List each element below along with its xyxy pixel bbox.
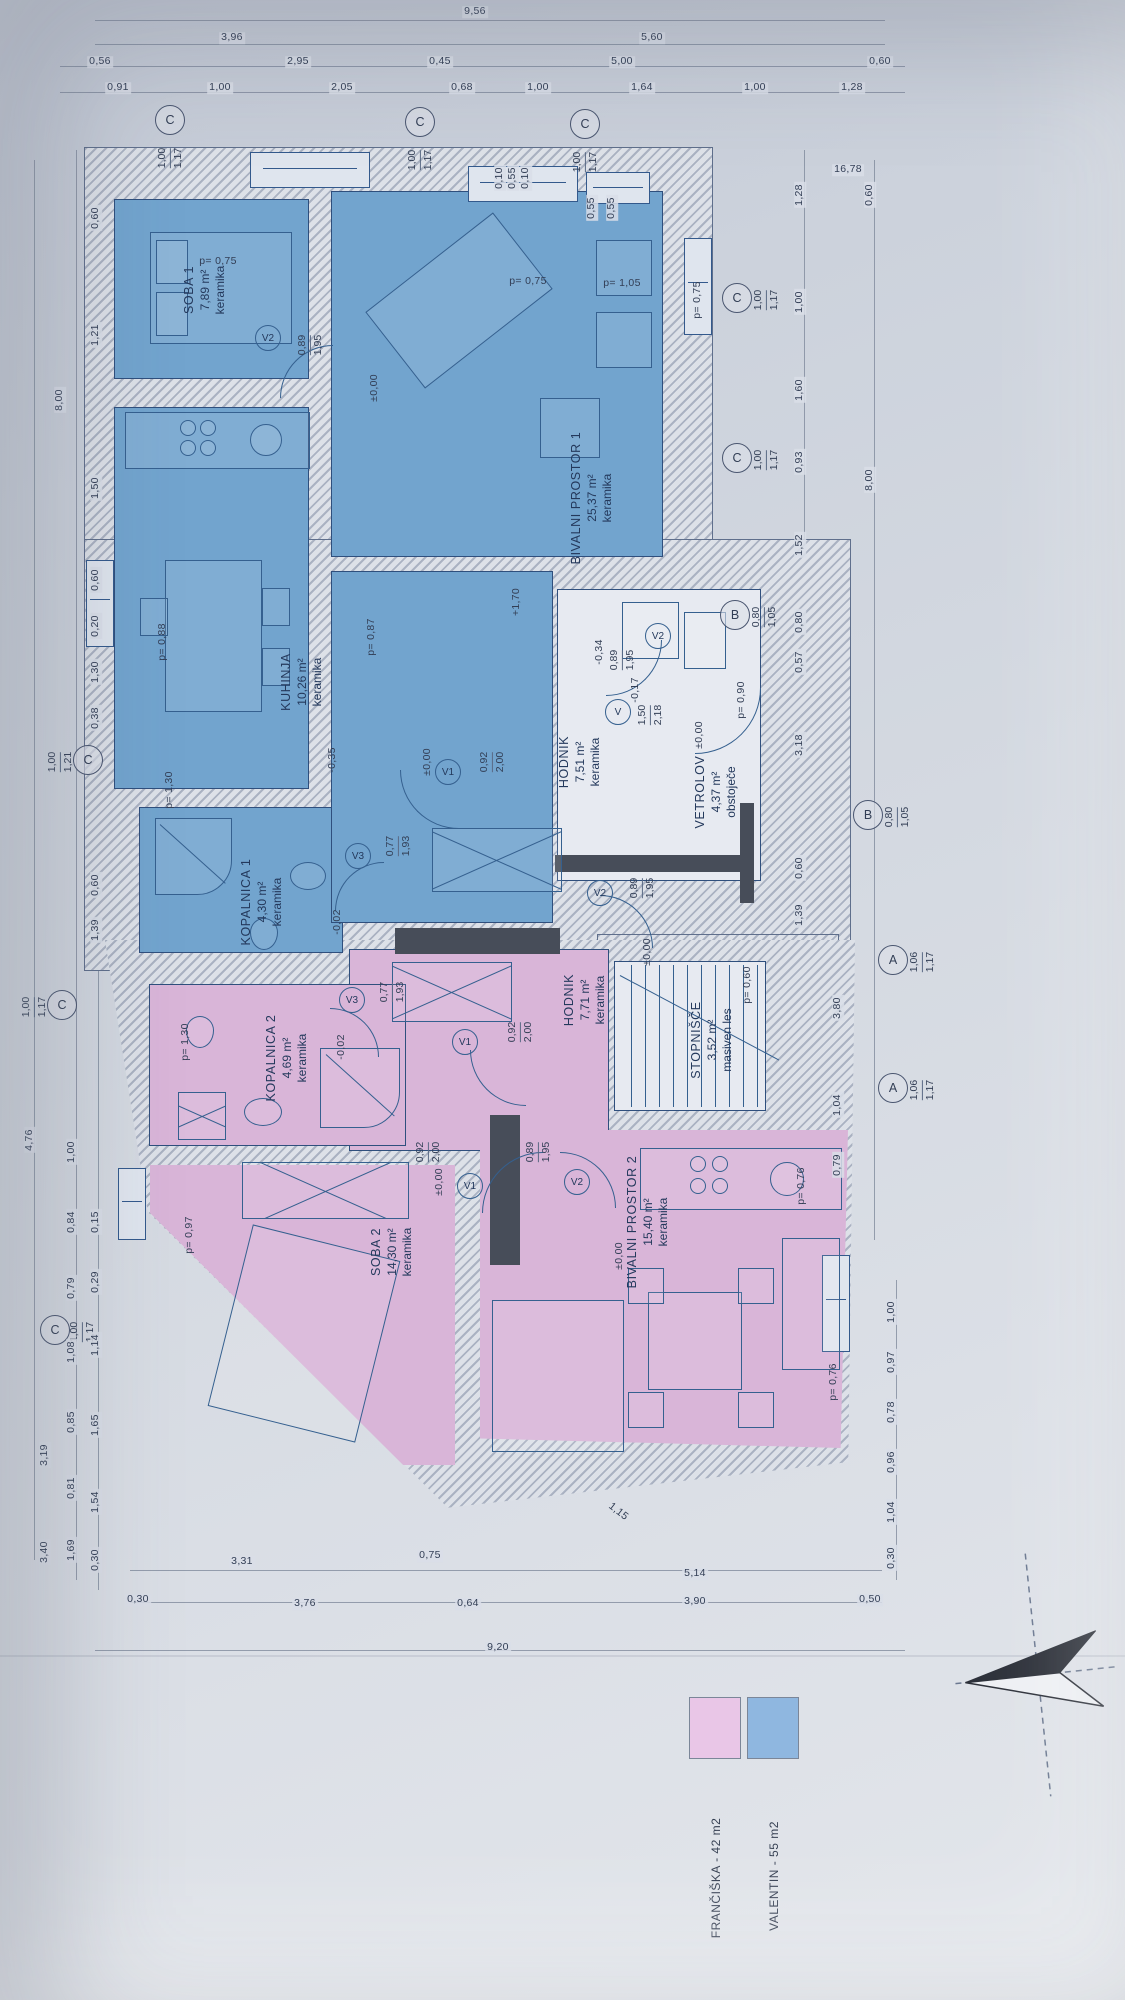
dim-0-38: 0,38	[90, 705, 102, 731]
dim-2-95: 2,95	[285, 56, 311, 68]
level-1-70: +1,70	[511, 586, 523, 618]
dim-0-60: 0,60	[90, 872, 102, 898]
rname: KUHINJA	[279, 587, 295, 777]
axis-marker-a: A	[878, 945, 908, 975]
dim-1-30: 1,30	[90, 659, 102, 685]
dim-0-78: 0,78	[886, 1399, 898, 1425]
level-0-00: ±0,00	[422, 746, 434, 778]
rname: SOBA 2	[369, 1157, 385, 1347]
dim-0-96: 0,96	[886, 1449, 898, 1475]
parapet-p-0-76: p= 0,76	[796, 1165, 808, 1206]
dim-8-00: 8,00	[864, 467, 876, 493]
dim-0-55: 0,55	[586, 195, 598, 221]
axis-marker-c: C	[47, 990, 77, 1020]
dim-1-28: 1,28	[794, 182, 806, 208]
room-label-kopalnica-1: KOPALNICA 14,30 m²keramika	[239, 807, 285, 997]
dim-1-00: 1,00	[742, 82, 768, 94]
dim-1-00: 1,00	[525, 82, 551, 94]
dim-0-97: 0,97	[886, 1349, 898, 1375]
dim-0-84: 0,84	[66, 1209, 78, 1235]
dim-9-56: 9,56	[462, 6, 488, 18]
axis-dims-c: 1,001,17	[156, 148, 184, 168]
dim-3-19: 3,19	[39, 1442, 51, 1468]
dim-3-76: 3,76	[292, 1598, 318, 1610]
north-arrow-icon	[937, 1537, 1125, 1814]
dim-0-68: 0,68	[449, 82, 475, 94]
dim-1-39: 1,39	[90, 917, 102, 943]
axis-marker-c: C	[570, 109, 600, 139]
door-dims-v3: 0,771,93	[384, 836, 412, 856]
dim-0-64: 0,64	[455, 1598, 481, 1610]
door-tag-v3: V3	[345, 843, 371, 869]
dim-1-08: 1,08	[66, 1339, 78, 1365]
dim-9-20: 9,20	[485, 1642, 511, 1654]
dim-0-20: 0,20	[90, 613, 102, 639]
dim-1-69: 1,69	[66, 1537, 78, 1563]
rarea: 10,26 m²	[295, 587, 310, 777]
rarea: 4,69 m²	[280, 963, 295, 1153]
dim-0-56: 0,56	[87, 56, 113, 68]
dim-1-04: 1,04	[886, 1499, 898, 1525]
axis-marker-a: A	[878, 1073, 908, 1103]
door-dims-v2: 0,891,95	[628, 878, 656, 898]
axis-marker-b: B	[720, 600, 750, 630]
dim-0-80: 0,80	[794, 609, 806, 635]
door-tag-v2: V2	[564, 1169, 590, 1195]
axis-marker-c: C	[155, 105, 185, 135]
rarea: 7,89 m²	[198, 195, 213, 385]
room-label-bivalni-prostor-2: BIVALNI PROSTOR 215,40 m²keramika	[625, 1127, 671, 1317]
rfinish: keramika	[593, 905, 608, 1095]
rfinish: keramika	[600, 403, 615, 593]
parapet-p-0-97: p= 0,97	[184, 1214, 196, 1255]
dim-0-15: 0,15	[90, 1209, 102, 1235]
door-dims-v: 1,502,18	[636, 705, 664, 725]
level-0-00: ±0,00	[434, 1166, 446, 1198]
dim-1-28: 1,28	[839, 82, 865, 94]
dim-0-60: 0,60	[90, 205, 102, 231]
dim-3-18: 3,18	[794, 732, 806, 758]
parapet-p-0-76: p= 0,76	[828, 1361, 840, 1402]
door-tag-v2: V2	[255, 325, 281, 351]
level-0-00: ±0,00	[694, 719, 706, 751]
dim-2-05: 2,05	[329, 82, 355, 94]
rarea: 3,52 m²	[705, 945, 720, 1135]
door-tag-v1: V1	[457, 1173, 483, 1199]
door-dims-v3: 0,771,93	[378, 982, 406, 1002]
rname: HODNIK	[562, 905, 578, 1095]
rarea: 15,40 m²	[641, 1127, 656, 1317]
dim-0-45: 0,45	[427, 56, 453, 68]
level-0-35: -0,35	[327, 745, 339, 774]
dim-0-57: 0,57	[794, 649, 806, 675]
dim-0-30: 0,30	[886, 1545, 898, 1571]
axis-marker-b: B	[853, 800, 883, 830]
dim-0-10: 0,10	[520, 165, 532, 191]
rname: STOPNIŠČE	[689, 945, 705, 1135]
rname: KOPALNICA 1	[239, 807, 255, 997]
rname: BIVALNI PROSTOR 2	[625, 1127, 641, 1317]
dim-0-93: 0,93	[794, 449, 806, 475]
axis-marker-c: C	[722, 283, 752, 313]
dim-0-30: 0,30	[90, 1547, 102, 1573]
axis-dims-a: 1,061,17	[908, 952, 936, 972]
door-tag-v3: V3	[339, 987, 365, 1013]
parapet-p-1-05: p= 1,05	[601, 278, 642, 290]
dim-1-54: 1,54	[90, 1489, 102, 1515]
room-label-hodnik: HODNIK7,51 m²keramika	[557, 667, 603, 857]
dim-0-55: 0,55	[507, 165, 519, 191]
axis-dims-c: 1,001,17	[752, 450, 780, 470]
dim-1-00: 1,00	[207, 82, 233, 94]
dim-0-30: 0,30	[125, 1594, 151, 1606]
rfinish: keramika	[310, 587, 325, 777]
rarea: 25,37 m²	[585, 403, 600, 593]
dim-1-64: 1,64	[629, 82, 655, 94]
parapet-p-0-75: p= 0,75	[692, 279, 704, 320]
axis-dims-c: 1,001,17	[406, 150, 434, 170]
dim-1-60: 1,60	[794, 377, 806, 403]
dim-16-78: 16,78	[832, 164, 864, 176]
dim-1-00: 1,00	[794, 289, 806, 315]
level-0-17: -0,17	[630, 675, 642, 704]
door-tag-v2: V2	[645, 623, 671, 649]
axis-dims-c: 1,001,17	[571, 152, 599, 172]
axis-dims-c: 1,001,21	[46, 752, 74, 772]
dim-1-52: 1,52	[794, 532, 806, 558]
dim-5-00: 5,00	[609, 56, 635, 68]
door-dims-v1: 0,922,00	[506, 1022, 534, 1042]
dim-1-00: 1,00	[886, 1299, 898, 1325]
door-dims-v2: 0,891,95	[296, 335, 324, 355]
rfinish: obstoječe	[724, 697, 739, 887]
level-0-02: -0,02	[336, 1032, 348, 1061]
dim-1-21: 1,21	[90, 322, 102, 348]
level-0-00: ±0,00	[642, 936, 654, 968]
axis-marker-c: C	[73, 745, 103, 775]
rfinish: keramika	[213, 195, 228, 385]
dim-0-10: 0,10	[494, 165, 506, 191]
rfinish: keramika	[400, 1157, 415, 1347]
axis-marker-c: C	[405, 107, 435, 137]
rname: SOBA 1	[182, 195, 198, 385]
axis-dims-b: 0,801,05	[750, 607, 778, 627]
rname: BIVALNI PROSTOR 1	[569, 403, 585, 593]
dim-4-76: 4,76	[24, 1127, 36, 1153]
rname: KOPALNICA 2	[264, 963, 280, 1153]
axis-dims-a: 1,061,17	[908, 1080, 936, 1100]
dim-0-60: 0,60	[867, 56, 893, 68]
parapet-p-0-75: p= 0,75	[507, 276, 548, 288]
floor-plan-photo: SOBA 17,89 m²keramikaBIVALNI PROSTOR 125…	[0, 0, 1125, 2000]
rfinish: keramika	[270, 807, 285, 997]
rfinish: keramika	[588, 667, 603, 857]
rfinish: keramika	[656, 1127, 671, 1317]
dim-0-29: 0,29	[90, 1269, 102, 1295]
dim-0-81: 0,81	[66, 1475, 78, 1501]
parapet-p-0-75: p= 0,75	[197, 256, 238, 268]
door-tag-v1: V1	[452, 1029, 478, 1055]
dim-0-60: 0,60	[90, 567, 102, 593]
dim-1-15: 1,15	[604, 1500, 631, 1525]
dim-1-50: 1,50	[90, 475, 102, 501]
dim-5-60: 5,60	[639, 32, 665, 44]
dim-0-75: 0,75	[417, 1550, 443, 1562]
dim-1-14: 1,14	[90, 1332, 102, 1358]
dim-0-79: 0,79	[66, 1275, 78, 1301]
level-0-00: ±0,00	[614, 1240, 626, 1272]
parapet-p-0-88: p= 0,88	[157, 621, 169, 662]
door-dims-v1: 0,922,00	[478, 752, 506, 772]
door-dims-v2: 0,891,95	[524, 1142, 552, 1162]
parapet-p-1-30: p= 1,30	[180, 1021, 192, 1062]
dim-1-04: 1,04	[832, 1092, 844, 1118]
room-label-bivalni-prostor-1: BIVALNI PROSTOR 125,37 m²keramika	[569, 403, 615, 593]
dim-1-65: 1,65	[90, 1412, 102, 1438]
dim-0-60: 0,60	[794, 855, 806, 881]
dim-0-91: 0,91	[105, 82, 131, 94]
dim-3-31: 3,31	[229, 1556, 255, 1568]
dim-3-90: 3,90	[682, 1596, 708, 1608]
rfinish: masiven les	[720, 945, 735, 1135]
room-label-soba-1: SOBA 17,89 m²keramika	[182, 195, 228, 385]
door-tag-v: V	[605, 699, 631, 725]
dim-0-60: 0,60	[864, 182, 876, 208]
parapet-p-1-30: p= 1,30	[164, 769, 176, 810]
axis-dims-c: 1,001,17	[752, 290, 780, 310]
axis-marker-c: C	[722, 443, 752, 473]
dim-1-00: 1,00	[66, 1139, 78, 1165]
dim-0-85: 0,85	[66, 1409, 78, 1435]
door-tag-v1: V1	[435, 759, 461, 785]
parapet-p-0-87: p= 0,87	[366, 616, 378, 657]
door-dims-v1: 0,922,00	[414, 1142, 442, 1162]
dim-0-55: 0,55	[606, 195, 618, 221]
axis-dims-c: 1,001,17	[20, 997, 48, 1017]
level-0-00: ±0,00	[369, 372, 381, 404]
room-label-kopalnica-2: KOPALNICA 24,69 m²keramika	[264, 963, 310, 1153]
axis-dims-b: 0,801,05	[883, 807, 911, 827]
dim-3-40: 3,40	[39, 1539, 51, 1565]
level-0-34: -0,34	[594, 637, 606, 666]
dim-3-96: 3,96	[219, 32, 245, 44]
dim-0-79: 0,79	[832, 1152, 844, 1178]
dim-8-00: 8,00	[54, 387, 66, 413]
door-dims-v2: 0,891,95	[608, 650, 636, 670]
parapet-p-0-90: p= 0,90	[736, 679, 748, 720]
level-0-02: -0,02	[332, 907, 344, 936]
dim-3-80: 3,80	[832, 995, 844, 1021]
rarea: 7,51 m²	[573, 667, 588, 857]
room-label-hodnik: HODNIK7,71 m²keramika	[562, 905, 608, 1095]
rarea: 7,71 m²	[578, 905, 593, 1095]
dim-1-39: 1,39	[794, 902, 806, 928]
door-tag-v2: V2	[587, 880, 613, 906]
dim-5-14: 5,14	[682, 1568, 708, 1580]
rname: HODNIK	[557, 667, 573, 857]
room-label-kuhinja: KUHINJA10,26 m²keramika	[279, 587, 325, 777]
rarea: 4,30 m²	[255, 807, 270, 997]
parapet-p-0-60: p= 0,60	[742, 964, 754, 1005]
rarea: 14,30 m²	[385, 1157, 400, 1347]
room-label-soba-2: SOBA 214,30 m²keramika	[369, 1157, 415, 1347]
rarea: 4,37 m²	[709, 697, 724, 887]
dim-0-50: 0,50	[857, 1594, 883, 1606]
room-label-stopni-e: STOPNIŠČE3,52 m²masiven les	[689, 945, 735, 1135]
rfinish: keramika	[295, 963, 310, 1153]
